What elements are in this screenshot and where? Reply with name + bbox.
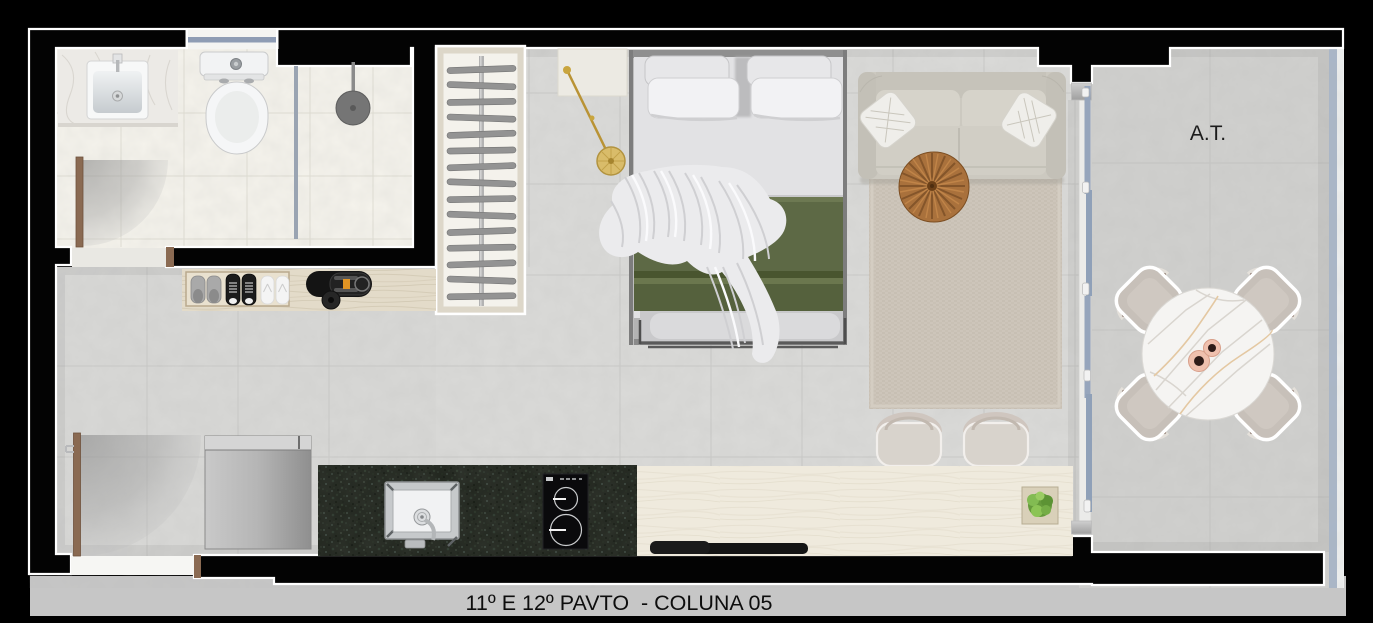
svg-text:A.T.: A.T. <box>1190 122 1226 145</box>
svg-text:11º E 12º PAVTO - COLUNA 05: 11º E 12º PAVTO - COLUNA 05 <box>466 591 773 615</box>
